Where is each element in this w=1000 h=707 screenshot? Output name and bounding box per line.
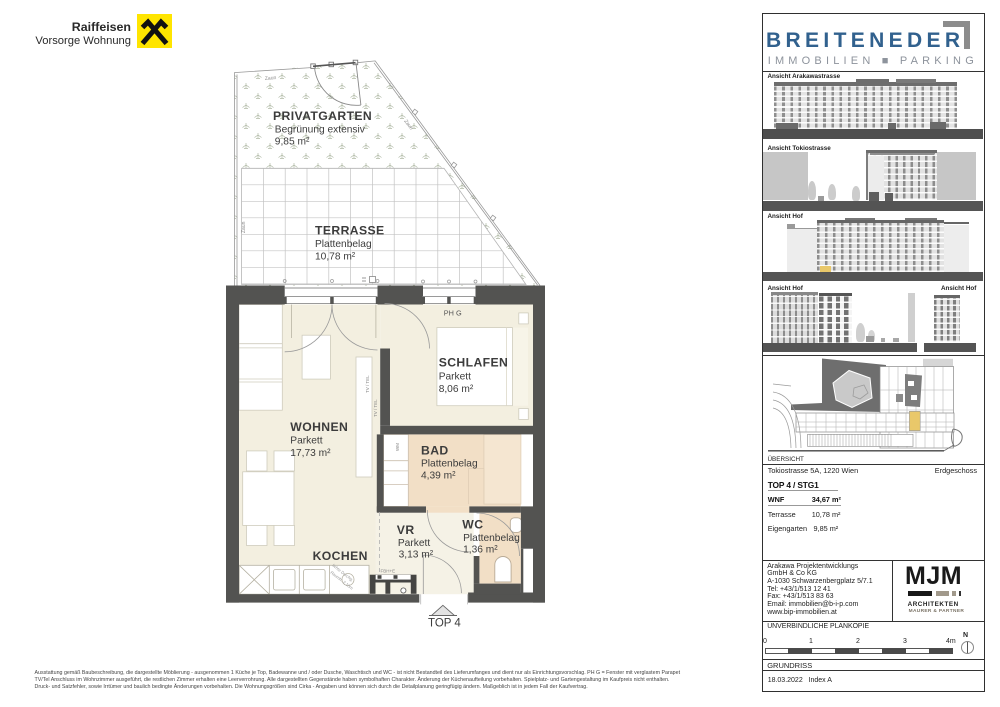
svg-text:4,39 m²: 4,39 m² bbox=[421, 471, 456, 482]
svg-text:Plattenbelag: Plattenbelag bbox=[421, 459, 478, 470]
svg-text:WC: WC bbox=[462, 518, 483, 532]
svg-text:9,85 m²: 9,85 m² bbox=[275, 136, 310, 147]
svg-text:Parkett: Parkett bbox=[398, 538, 430, 549]
svg-text:Parkett: Parkett bbox=[439, 372, 471, 383]
svg-text:Zaun: Zaun bbox=[265, 75, 277, 82]
svg-text:Begrünung extensiv: Begrünung extensiv bbox=[275, 125, 366, 136]
svg-text:PRIVATGARTEN: PRIVATGARTEN bbox=[273, 109, 372, 123]
svg-text:Plattenbelag: Plattenbelag bbox=[463, 533, 520, 544]
svg-text:TOP 4: TOP 4 bbox=[428, 618, 461, 630]
svg-text:Plattenbelag: Plattenbelag bbox=[315, 239, 372, 250]
svg-text:TV / TEL: TV / TEL bbox=[365, 375, 370, 393]
svg-text:1,36 m²: 1,36 m² bbox=[463, 544, 498, 555]
svg-text:WOHNEN: WOHNEN bbox=[290, 420, 348, 434]
svg-text:TV / TEL: TV / TEL bbox=[373, 399, 378, 417]
svg-text:BAD: BAD bbox=[421, 444, 449, 458]
svg-text:SCHLAFEN: SCHLAFEN bbox=[439, 356, 509, 370]
svg-text:VR: VR bbox=[397, 523, 415, 537]
svg-text:8,06 m²: 8,06 m² bbox=[439, 384, 474, 395]
svg-text:PH G: PH G bbox=[444, 309, 462, 318]
svg-text:FBH+E: FBH+E bbox=[381, 569, 396, 574]
svg-text:17,73 m²: 17,73 m² bbox=[290, 448, 331, 459]
svg-text:Zaun: Zaun bbox=[241, 221, 247, 233]
svg-text:TERRASSE: TERRASSE bbox=[315, 224, 385, 238]
svg-text:Parkett: Parkett bbox=[290, 436, 322, 447]
svg-text:3,13 m²: 3,13 m² bbox=[399, 550, 434, 561]
svg-text:10,78 m²: 10,78 m² bbox=[315, 252, 356, 263]
svg-text:KOCHEN: KOCHEN bbox=[313, 549, 368, 563]
svg-text:WM: WM bbox=[395, 443, 400, 451]
